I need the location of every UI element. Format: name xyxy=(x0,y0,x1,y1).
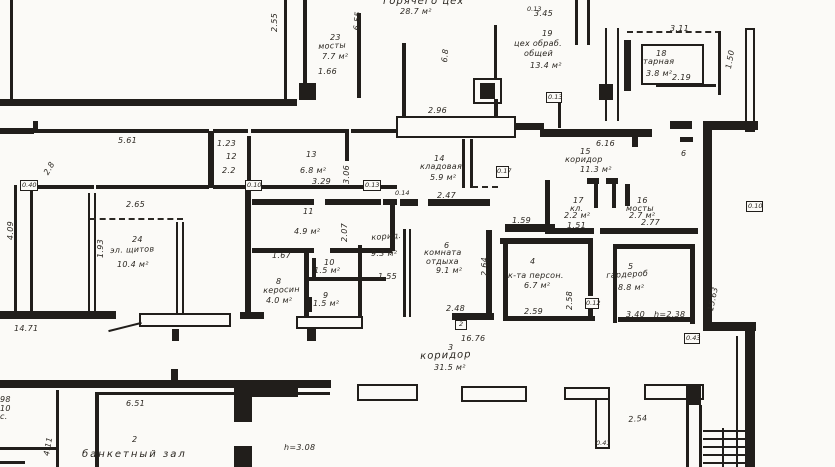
wall-segment xyxy=(96,185,209,189)
dim-label: 4.11 xyxy=(42,436,54,456)
wall-segment xyxy=(494,99,498,117)
room15-name: коридор xyxy=(565,155,603,164)
wall-segment xyxy=(409,229,411,317)
wall-segment xyxy=(0,128,34,134)
dim-label: 2.55 xyxy=(270,13,279,32)
room19-num: 19 xyxy=(542,29,553,38)
wall-segment xyxy=(0,99,297,106)
room23-dim: 1.66 xyxy=(318,67,337,76)
wall-stub xyxy=(171,369,178,380)
room8-name: керосин xyxy=(263,285,300,295)
room2-num: 2 xyxy=(132,435,137,444)
wall-segment xyxy=(452,313,494,320)
floor-plan: горячего цех 28.7 м² 23 мосты 7.7 м² 1.6… xyxy=(0,0,835,467)
room3-name: коридор xyxy=(420,349,472,362)
dim-label: 0.17 xyxy=(497,168,511,175)
axis-label: 6 xyxy=(681,149,686,158)
room7-name: корид. xyxy=(371,231,401,242)
dim-label: 0.41 xyxy=(596,440,610,447)
room19-name1: цех обраб. xyxy=(514,39,562,48)
wall-segment xyxy=(176,222,178,313)
wall-segment xyxy=(308,277,386,281)
room3-dim: 16.76 xyxy=(461,334,485,343)
room14-name: кладовая xyxy=(420,162,462,171)
platform-outline xyxy=(139,313,231,327)
wall-segment xyxy=(213,185,245,189)
room13-dim: 3.29 xyxy=(312,177,331,186)
wall-segment xyxy=(587,0,590,45)
wall-segment xyxy=(245,189,251,316)
wall-segment xyxy=(208,131,214,188)
wall-segment xyxy=(303,0,307,84)
dim-label: 0.10 xyxy=(247,182,261,189)
wall-segment xyxy=(745,330,755,467)
room15-dim: 6.16 xyxy=(596,139,615,148)
edge-fragment: 98 xyxy=(0,395,11,404)
wall-segment xyxy=(500,238,588,244)
room19-area: 13.4 м² xyxy=(530,61,562,70)
dim-label: 0.13 xyxy=(548,94,562,101)
dim-label: 0.14 xyxy=(395,190,409,197)
dim-label: 1.50 xyxy=(724,49,736,69)
wall-segment xyxy=(613,244,695,249)
wall-segment xyxy=(686,405,689,467)
door-tag-label: 2 xyxy=(459,321,463,328)
room19-name2: общей xyxy=(524,49,553,58)
room15-area: 11.3 м² xyxy=(580,165,612,174)
counter-outline xyxy=(396,116,516,138)
wall-segment xyxy=(38,185,94,189)
wall-segment xyxy=(699,405,702,467)
wall-segment xyxy=(358,245,362,317)
dim-label: 4.09 xyxy=(6,221,15,240)
room18-area: 3.8 м² xyxy=(646,69,672,78)
wall-segment xyxy=(56,390,59,467)
dim-label: 6.8 xyxy=(440,48,450,62)
dim-label: 1.59 xyxy=(512,216,531,225)
room13-num: 13 xyxy=(306,150,317,159)
pillar xyxy=(234,388,252,422)
wall-segment xyxy=(0,311,116,319)
room24-num: 24 xyxy=(132,235,143,244)
wall-segment xyxy=(656,84,716,87)
wall-segment xyxy=(718,31,721,95)
room11-area: 4.9 м² xyxy=(294,227,320,236)
wall-segment xyxy=(613,249,617,323)
dim-label: 0.10 xyxy=(748,203,762,210)
room14-dim: 2.47 xyxy=(437,191,456,200)
room6-area: 9.1 м² xyxy=(436,266,462,275)
dim-label: 0.13 xyxy=(527,6,541,13)
room23-name: мосты xyxy=(318,41,346,52)
wall-segment xyxy=(680,137,693,142)
dim-label: 2.58 xyxy=(565,291,574,310)
wall-segment xyxy=(503,244,508,318)
stair-tread xyxy=(703,430,746,432)
wall-segment xyxy=(37,129,209,133)
wall-segment xyxy=(251,129,348,133)
wall-segment xyxy=(284,0,287,100)
room18-name: тарная xyxy=(643,57,674,66)
door-swing-line xyxy=(108,322,141,332)
dim-label: 2.64 xyxy=(480,257,489,276)
dim-label: 1.93 xyxy=(96,239,105,258)
wall-segment xyxy=(325,199,381,205)
room12-num: 12 xyxy=(226,152,237,161)
wall-segment xyxy=(594,184,598,208)
room24-dim: 2.65 xyxy=(126,200,145,209)
pillar xyxy=(234,446,252,467)
room16-dim: 2.77 xyxy=(641,218,660,227)
wall-stub xyxy=(307,329,316,341)
wall-segment xyxy=(625,184,630,206)
wall-segment xyxy=(345,129,349,161)
room18-dim: 2.19 xyxy=(672,73,691,82)
room4-dim: 2.59 xyxy=(524,307,543,316)
wall-segment xyxy=(462,139,465,188)
room13-area: 6.8 м² xyxy=(300,166,326,175)
wall-segment xyxy=(252,199,314,205)
room17-area: 2.2 м² xyxy=(564,211,590,220)
edge-fragment: с. xyxy=(0,412,8,421)
wall-segment xyxy=(402,43,406,119)
stair-tread xyxy=(703,462,746,464)
dim-label: 5.61 xyxy=(118,136,137,145)
stair-divider xyxy=(722,428,724,467)
room5-area: 8.8 м² xyxy=(618,283,644,292)
dim-label: 3.06 xyxy=(342,165,351,184)
room5-name: гардероб xyxy=(606,269,648,280)
room7-dim: 1.55 xyxy=(378,272,397,281)
wall-segment xyxy=(494,25,497,79)
dim-label: 0.13 xyxy=(365,182,379,189)
room11-num: 11 xyxy=(303,207,314,216)
pier-outline xyxy=(745,28,755,132)
wall-segment xyxy=(390,205,395,251)
wall-dashed xyxy=(472,186,498,188)
wall-segment xyxy=(600,228,698,234)
wall-dashed xyxy=(90,218,183,220)
room18-dim2: 3.11 xyxy=(670,24,689,33)
room24-area: 10.4 м² xyxy=(117,260,149,269)
wall-segment xyxy=(400,199,418,206)
wall-segment xyxy=(540,129,652,137)
room3-area: 31.5 м² xyxy=(434,363,466,372)
wall-segment xyxy=(240,312,264,319)
dim-label: 6.55 xyxy=(352,11,363,31)
room12-dim: 2.2 xyxy=(222,166,236,175)
wall-segment xyxy=(690,244,695,324)
dim-label: 14.71 xyxy=(14,324,38,333)
room14-area: 5.9 м² xyxy=(430,173,456,182)
room8-area: 4.0 м² xyxy=(266,296,292,305)
room9-area: 1.5 м² xyxy=(313,299,339,308)
wall-segment xyxy=(670,121,692,129)
wall-column xyxy=(686,386,701,405)
stair-tread xyxy=(703,446,746,448)
room23-area: 7.7 м² xyxy=(322,52,348,61)
room17-dim: 1.51 xyxy=(567,221,586,230)
pillar-outline xyxy=(461,386,527,402)
wall-segment xyxy=(588,238,593,296)
room4-area: 6.7 м² xyxy=(524,281,550,290)
room5-dim: 3.40 xyxy=(626,310,645,319)
wall-segment xyxy=(470,139,473,188)
room2-height: h=3.08 xyxy=(284,443,315,452)
room4-name: к-та персон. xyxy=(508,271,564,280)
wall-segment xyxy=(403,229,406,317)
wall-column xyxy=(299,83,316,100)
wall-segment xyxy=(703,121,758,130)
wall-segment xyxy=(575,0,578,45)
room6-dim: 2.48 xyxy=(446,304,465,313)
pillar-outline xyxy=(357,384,418,401)
room24-name: эл. щитов xyxy=(110,244,155,255)
room6-name2: отдыха xyxy=(426,257,459,266)
wall-segment xyxy=(505,224,555,232)
wall-column xyxy=(480,83,495,99)
room7-area: 9.3 м² xyxy=(371,249,397,258)
wall-segment xyxy=(14,185,17,313)
dim-label: 2.07 xyxy=(340,223,349,242)
wall-segment xyxy=(351,129,398,133)
room8-dim: 1.67 xyxy=(272,251,291,260)
dim-label: 2.54 xyxy=(628,414,648,424)
wall-segment xyxy=(0,461,25,464)
room5-height: h=2.38 xyxy=(654,310,685,319)
wall-segment xyxy=(30,185,33,313)
wall-segment xyxy=(624,40,631,91)
dim-label: 0.12 xyxy=(586,300,600,307)
platform-outline xyxy=(296,316,363,329)
dim-label: 0.40 xyxy=(22,182,36,189)
wall-segment xyxy=(308,297,312,312)
room10-area: 1.5 м² xyxy=(314,266,340,275)
wall-segment xyxy=(632,137,638,147)
room4-num: 4 xyxy=(530,257,535,266)
wall-segment xyxy=(612,184,616,208)
dim-label: 2.8 xyxy=(42,160,57,176)
wall-segment xyxy=(252,386,298,397)
room6-name1: комната xyxy=(424,248,462,257)
stair-tread xyxy=(703,438,746,440)
wall-segment xyxy=(605,28,607,121)
dim-label: 2.96 xyxy=(428,106,447,115)
room12-dim2: 1.23 xyxy=(217,139,236,148)
room2-dim: 6.51 xyxy=(126,399,145,408)
wall-segment xyxy=(617,28,619,121)
hot-shop-area: 28.7 м² xyxy=(400,7,432,16)
wall-segment xyxy=(182,222,184,313)
wall-stub xyxy=(172,329,179,341)
room2-name: банкетный зал xyxy=(82,449,187,461)
stair-tread xyxy=(703,454,746,456)
wall-segment xyxy=(88,193,90,314)
dim-label: 0.43 xyxy=(686,335,700,342)
wall-segment xyxy=(213,129,248,133)
wall-segment xyxy=(503,316,595,321)
wall-segment xyxy=(10,0,13,101)
